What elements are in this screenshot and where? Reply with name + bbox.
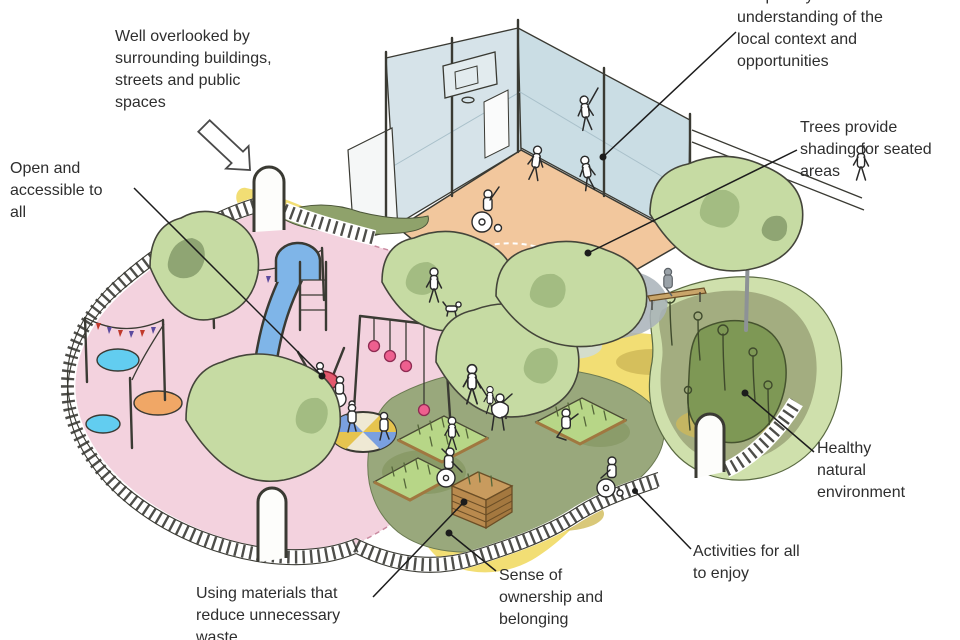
court-door-gap [484,90,509,158]
annotation-shaped-by-context: Shaped by an understanding of the local … [737,0,912,73]
gate-arch-east [696,414,724,478]
annotation-healthy-natural: Healthy natural environment [817,438,917,504]
sand-oval [134,391,182,415]
leader-activities [632,488,691,549]
annotation-well-overlooked: Well overlooked by surrounding buildings… [115,26,283,114]
annotation-using-materials: Using materials that reduce unnecessary … [196,583,368,640]
gate-arch-north [254,167,284,232]
diagram-canvas: Well overlooked by surrounding buildings… [0,0,960,640]
annotation-sense-of-ownership: Sense of ownership and belonging [499,565,619,631]
slide-arch [276,243,320,282]
gate-arch-south [258,488,286,562]
annotation-trees-shading: Trees provide shading for seated areas [800,117,950,183]
down-right-arrow-icon [198,120,250,170]
pond [86,415,120,433]
annotation-open-accessible: Open and accessible to all [10,158,118,224]
annotation-activities-for-all: Activities for all to enjoy [693,541,811,585]
pond [97,349,139,371]
